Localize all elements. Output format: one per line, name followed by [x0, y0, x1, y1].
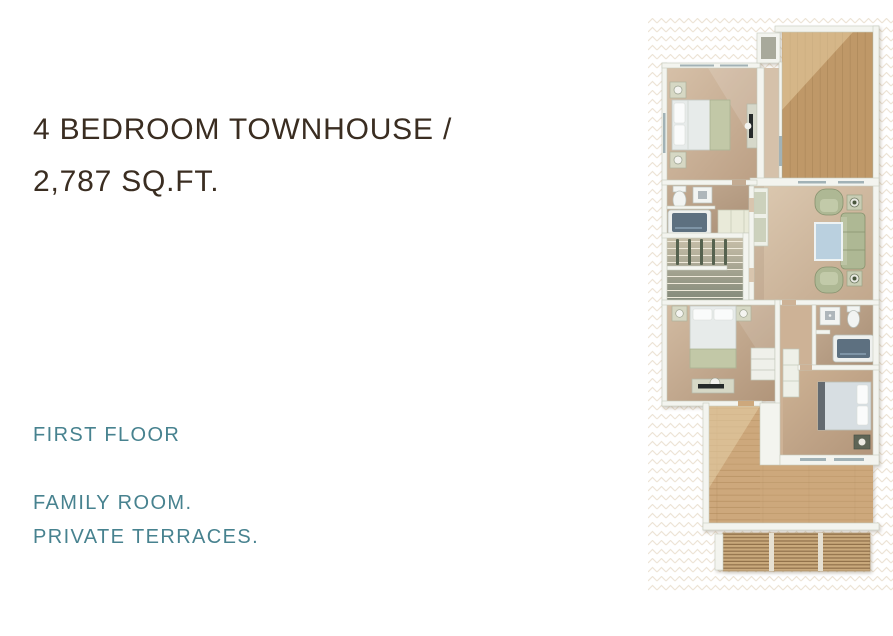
- baluster: [700, 239, 703, 265]
- feature-item-private-terraces: PRIVATE TERRACES.: [33, 520, 259, 554]
- wall-bath-inner: [667, 206, 715, 209]
- window: [834, 458, 864, 461]
- family-room-furniture: [815, 189, 865, 293]
- staircase: [667, 238, 743, 300]
- niche-floor: [764, 68, 780, 180]
- lamp: [674, 156, 682, 164]
- door-to-terrace: [738, 401, 754, 406]
- wall-bath-bottom: [662, 233, 749, 238]
- louver-divider: [818, 533, 823, 571]
- toilet-bowl: [848, 311, 860, 328]
- door-master-bath: [732, 180, 746, 185]
- terrace-planks-bottom: [709, 465, 873, 523]
- wall-bath2-left: [812, 305, 816, 365]
- pillow: [857, 385, 868, 404]
- window: [720, 65, 748, 67]
- louver-slats: [723, 533, 870, 571]
- baluster: [688, 239, 691, 265]
- wardrobe: [783, 349, 799, 397]
- door-to-bath: [749, 198, 754, 212]
- lamp: [676, 310, 684, 318]
- pillow: [857, 406, 868, 425]
- wall-terrace-left: [703, 403, 709, 530]
- wall-bed2-top: [662, 300, 780, 305]
- wall-deck-top: [775, 26, 879, 32]
- page-title: 4 BEDROOM TOWNHOUSE / 2,787 SQ.FT.: [33, 104, 593, 208]
- window: [800, 458, 826, 461]
- floorplan-svg: [648, 18, 893, 594]
- wall-stairs-right: [743, 233, 749, 305]
- page-title-line1: 4 BEDROOM TOWNHOUSE /: [33, 104, 593, 156]
- armchair-seat: [820, 199, 838, 212]
- floor-label: FIRST FLOOR: [33, 424, 180, 447]
- lamp: [740, 310, 748, 318]
- pillow: [674, 125, 685, 145]
- bathtub-interior: [837, 339, 870, 358]
- pillow: [674, 103, 685, 123]
- armchair-seat: [820, 272, 838, 285]
- door-to-bedroom-3: [800, 365, 812, 370]
- top-box-interior: [761, 37, 776, 59]
- bed-foot-throw: [818, 382, 825, 430]
- wall-bed3-bottom: [780, 455, 879, 465]
- door-to-stairs: [749, 268, 754, 282]
- page-title-line2: 2,787 SQ.FT.: [33, 156, 593, 208]
- corridor-wardrobe: [783, 349, 799, 397]
- stair-rail: [667, 266, 727, 270]
- louver-divider: [769, 533, 774, 571]
- window: [798, 181, 826, 184]
- bed-foot-throw: [710, 100, 730, 150]
- bed-foot-throw: [690, 349, 736, 368]
- louvered-pergola: [715, 533, 870, 571]
- tv-screen: [698, 384, 724, 389]
- window: [838, 181, 864, 184]
- baluster: [712, 239, 715, 265]
- lamp: [674, 86, 682, 94]
- sink-basin: [698, 191, 707, 199]
- wall-bench: [760, 403, 780, 465]
- coffee-table: [815, 223, 842, 260]
- feature-list: FAMILY ROOM. PRIVATE TERRACES.: [33, 486, 259, 554]
- closet-shelf: [754, 218, 766, 242]
- window: [680, 65, 714, 67]
- pillow: [714, 309, 733, 320]
- decor-bowl: [859, 439, 866, 446]
- wardrobe: [751, 348, 775, 380]
- floorplan-image: [648, 18, 893, 594]
- bathtub-interior: [672, 213, 707, 232]
- pillow: [693, 309, 712, 320]
- wall-master-right: [757, 68, 764, 180]
- hallway-closet: [752, 188, 768, 246]
- window: [663, 113, 666, 153]
- closet-shelf: [754, 192, 766, 214]
- wall-light: [745, 123, 752, 130]
- wall-bed2-right: [775, 300, 780, 406]
- bath-partition: [816, 330, 830, 334]
- sink-drain: [829, 314, 832, 317]
- door-to-corridor: [782, 300, 796, 305]
- wall-terrace-bottom: [703, 523, 879, 530]
- feature-item-family-room: FAMILY ROOM.: [33, 486, 259, 520]
- window: [779, 136, 782, 166]
- baluster: [676, 239, 679, 265]
- plant: [853, 201, 857, 205]
- louver-sill: [715, 534, 723, 570]
- plant: [853, 277, 857, 281]
- wall-right-outer: [873, 26, 879, 465]
- baluster: [724, 239, 727, 265]
